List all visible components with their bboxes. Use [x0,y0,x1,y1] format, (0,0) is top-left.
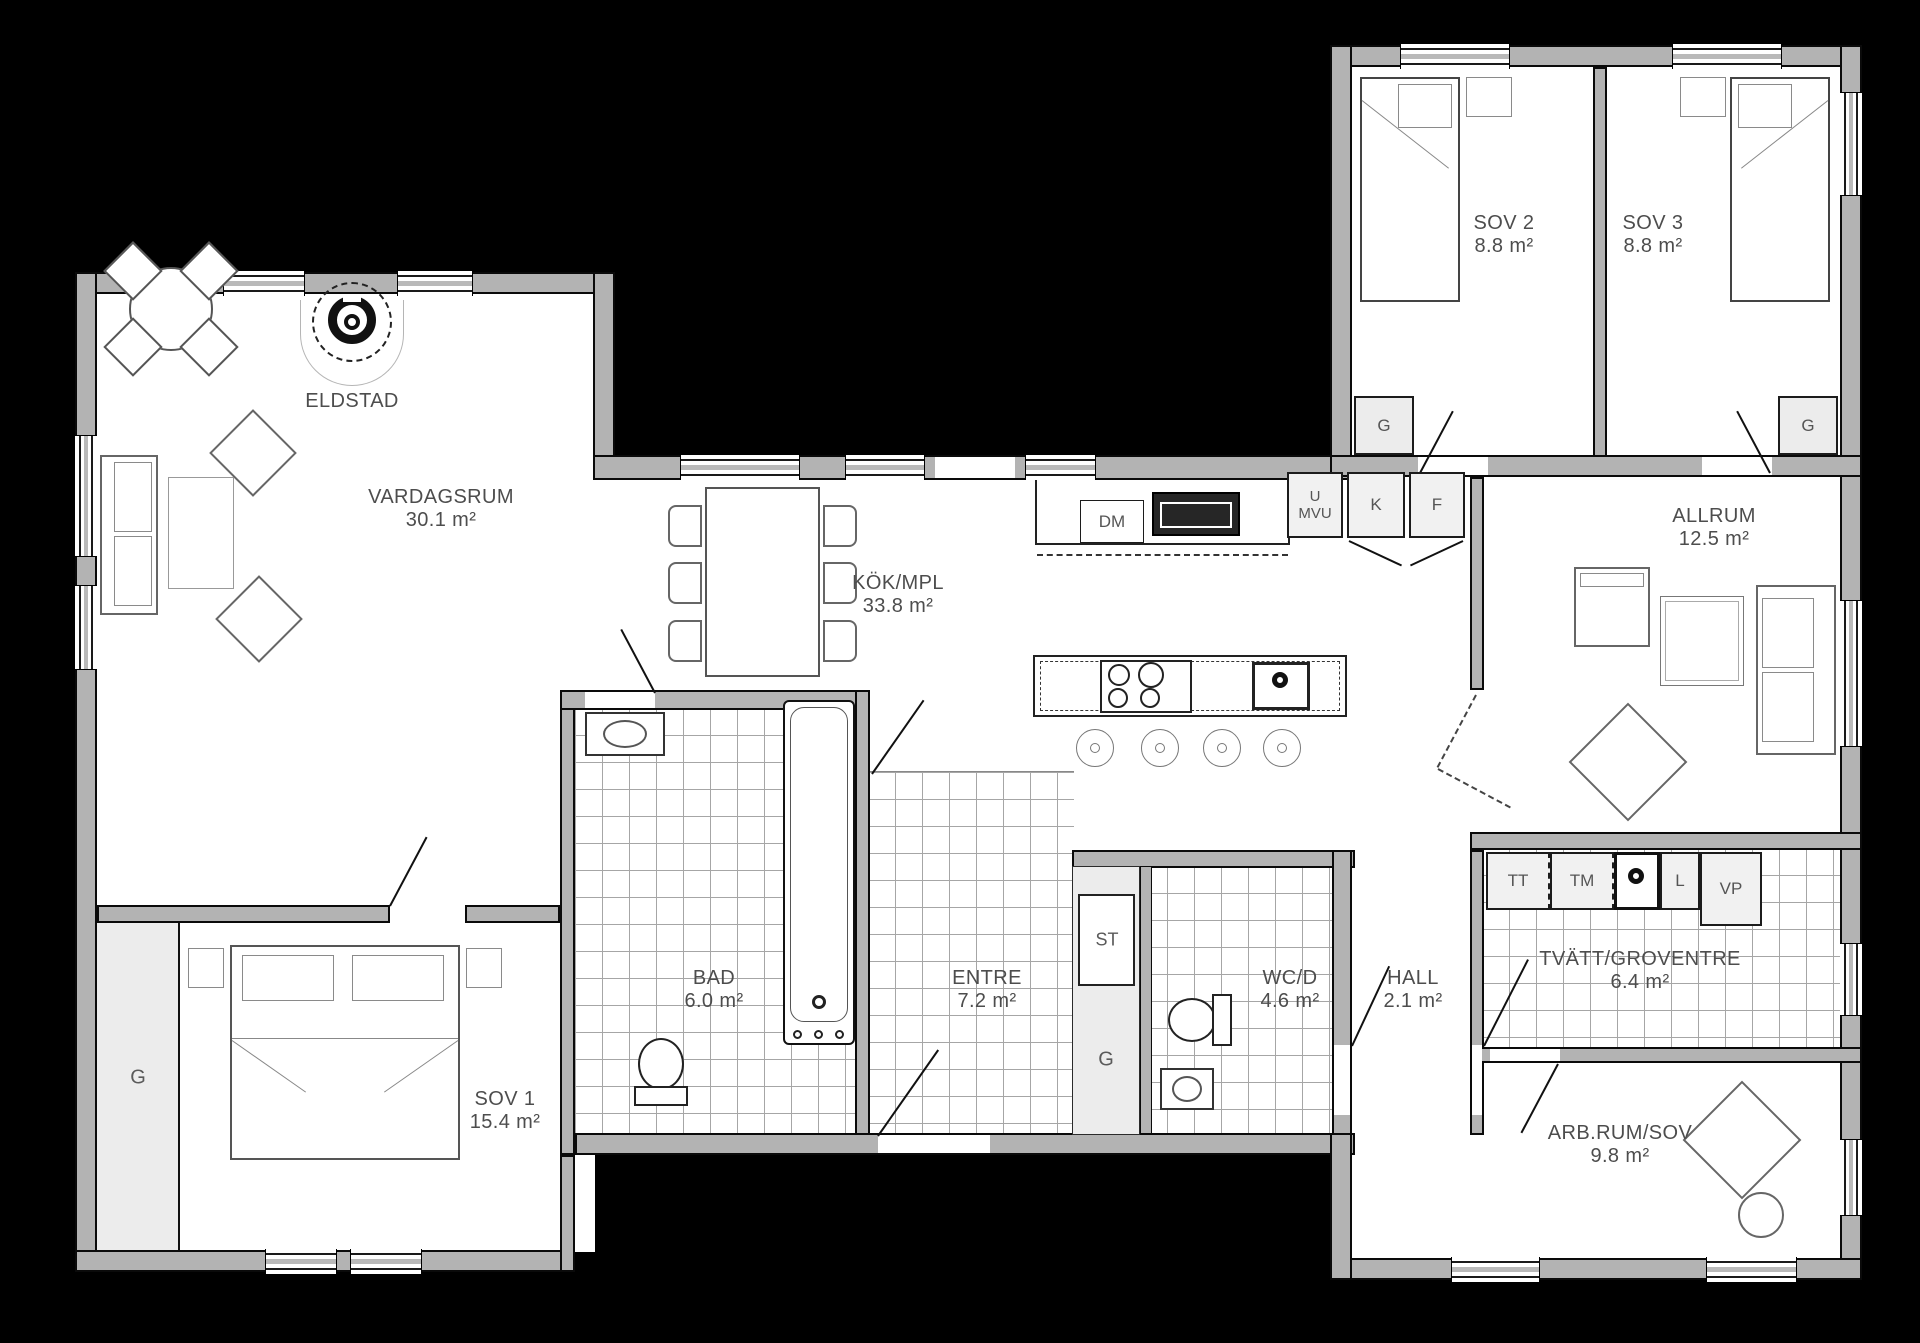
room-area: 33.8 m² [852,595,944,618]
room-name: SOV 3 [1623,212,1684,235]
window [845,455,925,480]
room-label-arbrum: ARB.RUM/SOV 9.8 m² [1548,1122,1692,1168]
wall-segment [1330,1133,1352,1280]
door-opening [390,907,465,921]
toilet-tank [634,1086,688,1106]
wall-segment [1470,477,1484,690]
room-label-tvatt: TVÄTT/GROVENTRE 6.4 m² [1539,948,1741,994]
wall-segment [1470,832,1862,850]
chair [668,620,702,662]
room-label-entre: ENTRE 7.2 m² [952,967,1022,1013]
room-name: ARB.RUM/SOV [1548,1122,1692,1145]
room-label-sov1: SOV 1 15.4 m² [470,1088,541,1134]
night-table [466,948,502,988]
appliance-label: L [1675,871,1684,891]
faucet [1628,868,1644,884]
fireplace-core [344,314,360,330]
wall-segment [75,272,97,1272]
fireplace-notch [343,294,361,302]
window [1840,943,1862,1016]
door-opening [935,457,1015,478]
wall-segment [465,905,560,923]
tumble-dryer: TT [1486,852,1550,910]
stool-center [1217,743,1227,753]
appliance-label: TT [1508,871,1529,891]
wall-segment [1140,866,1152,1135]
door-opening [1334,1045,1350,1115]
stool-center [1277,743,1287,753]
oven [1152,492,1240,536]
sofa-cushion [1762,672,1814,742]
coffee-table-inner [1665,601,1739,681]
wardrobe-label: G [1377,416,1390,436]
toilet-tank [1212,994,1232,1046]
room-label-wcd: WC/D 4.6 m² [1260,967,1319,1013]
room-area: 6.4 m² [1539,971,1741,994]
appliance-label: TM [1570,871,1595,891]
bathtub-foot [835,1030,844,1039]
room-name: BAD [684,967,743,990]
burner [1138,662,1164,688]
room-name: SOV 1 [470,1088,541,1111]
room-area: 8.8 m² [1623,235,1684,258]
window [350,1249,422,1274]
appliance-label: MVU [1298,505,1331,522]
room-area: 8.8 m² [1474,235,1535,258]
upper-cabinet-dashed [1037,554,1288,556]
room-label-sov2: SOV 2 8.8 m² [1474,212,1535,258]
wardrobe-label: G [1801,416,1814,436]
room-name: HALL [1383,967,1442,990]
door-opening [1472,1045,1482,1115]
toilet [638,1038,684,1090]
appliance-label: VP [1720,879,1743,899]
window [1451,1257,1540,1282]
window [1840,1139,1862,1216]
night-table [1466,77,1512,117]
chair [823,620,857,662]
feature-name: ELDSTAD [305,390,399,413]
room-area: 2.1 m² [1383,990,1442,1013]
room-label-kok: KÖK/MPL 33.8 m² [852,572,944,618]
stool-center [1090,743,1100,753]
stool-center [1155,743,1165,753]
room-label-bad: BAD 6.0 m² [684,967,743,1013]
wall-segment [97,905,390,923]
washbasin [603,720,647,748]
pillow [1738,84,1792,128]
rug [168,477,234,589]
blanket-line [232,1038,458,1039]
bathtub-foot [814,1030,823,1039]
appliance-label: DM [1099,512,1125,532]
room-name: WC/D [1260,967,1319,990]
sofa-cushion [1762,598,1814,668]
appliance-label: U [1310,488,1321,505]
wall-segment [593,272,615,480]
wall-segment [1593,67,1607,457]
window [1706,1257,1797,1282]
room-label-sov3: SOV 3 8.8 m² [1623,212,1684,258]
window [1672,44,1782,69]
wall-segment [855,690,870,1135]
room-area: 6.0 m² [684,990,743,1013]
room-label-allrum: ALLRUM 12.5 m² [1672,505,1756,551]
room-name: TVÄTT/GROVENTRE [1539,948,1741,971]
entre-tiled-floor [868,771,1074,1136]
room-name: SOV 2 [1474,212,1535,235]
window [75,435,97,557]
window [397,271,473,296]
room-name: VARDAGSRUM [368,486,514,509]
feature-label-eldstad: ELDSTAD [305,390,399,413]
night-table [1680,77,1726,117]
window [1400,44,1510,69]
dining-table [705,487,820,677]
appliance-label: F [1432,495,1442,515]
wc-sink-basin [1172,1076,1202,1102]
faucet [1272,672,1288,688]
cabinet-l: L [1660,852,1700,910]
night-table [188,948,224,988]
room-name: KÖK/MPL [852,572,944,595]
burner [1108,688,1128,708]
pillow [1398,84,1452,128]
appliance-label: K [1370,495,1381,515]
burner [1108,664,1130,686]
window [680,455,800,480]
window [223,271,305,296]
room-area: 4.6 m² [1260,990,1319,1013]
wall-segment [560,690,575,1155]
pillow [352,955,444,1001]
armchair-back [1580,573,1644,587]
wardrobe-g: G [1778,396,1838,455]
room-area: 7.2 m² [952,990,1022,1013]
wall-segment [1330,45,1352,477]
sofa-cushion [114,462,152,532]
heat-pump: VP [1700,852,1762,926]
pillow [242,955,334,1001]
room-area: 30.1 m² [368,509,514,532]
window [1840,600,1862,747]
room-name: ENTRE [952,967,1022,990]
bathtub-drain [812,995,826,1009]
washing-machine: TM [1550,852,1614,910]
chair [668,562,702,604]
room-name: ALLRUM [1672,505,1756,528]
toilet [1168,998,1216,1042]
window [265,1249,337,1274]
side-table [1738,1192,1784,1238]
closet-st-label: ST [1095,930,1118,951]
room-area: 9.8 m² [1548,1145,1692,1168]
door-opening [1490,1049,1560,1061]
chair [668,505,702,547]
unit-f: F [1409,472,1465,538]
room-area: 15.4 m² [470,1111,541,1134]
window [1025,455,1096,480]
bathtub-inner [790,707,848,1022]
chair [823,505,857,547]
floor-plan: VARDAGSRUM 30.1 m² ELDSTAD G SOV 1 15.4 … [0,0,1920,1343]
bathtub-foot [793,1030,802,1039]
dishwasher: DM [1080,500,1144,543]
room-area: 12.5 m² [1672,528,1756,551]
door-opening [878,1135,990,1153]
door-opening [585,692,655,708]
window [1840,92,1862,196]
burner [1140,688,1160,708]
room-label-hall: HALL 2.1 m² [1383,967,1442,1013]
room-label-vardagsrum: VARDAGSRUM 30.1 m² [368,486,514,532]
wall-segment [560,1155,575,1272]
unit-k: K [1347,472,1405,538]
sofa-cushion [114,536,152,606]
wardrobe-label: G [1098,1049,1114,1072]
unit-u-mvu: U MVU [1287,472,1343,538]
wardrobe-g: G [1354,396,1414,455]
wardrobe-label: G [130,1067,146,1090]
window [75,585,97,670]
